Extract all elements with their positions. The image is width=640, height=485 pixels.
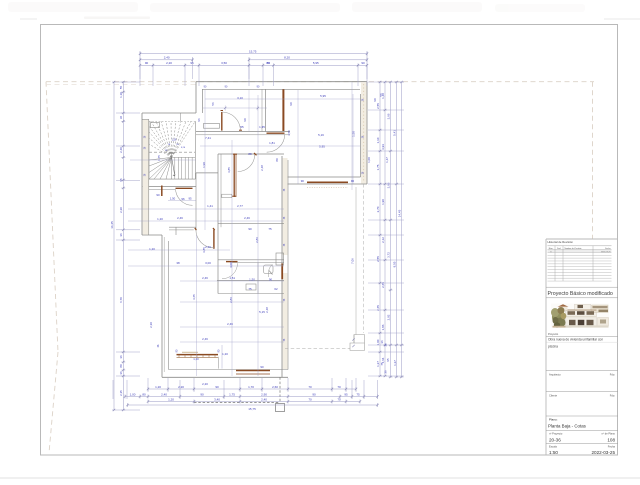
svg-text:75: 75	[268, 227, 272, 231]
svg-text:95: 95	[188, 197, 192, 201]
svg-text:8,55: 8,55	[392, 261, 396, 267]
svg-text:2,86: 2,86	[229, 297, 233, 303]
svg-text:2022-03-25: 2022-03-25	[592, 450, 616, 455]
svg-text:Proyecto: Proyecto	[548, 332, 559, 336]
svg-text:Nombre del Cambio: Nombre del Cambio	[565, 247, 582, 250]
svg-text:2,40: 2,40	[164, 56, 170, 60]
svg-text:36: 36	[384, 343, 388, 347]
svg-text:90: 90	[145, 61, 149, 65]
svg-text:2,70: 2,70	[376, 206, 380, 212]
svg-text:Historial de Revisión: Historial de Revisión	[548, 240, 574, 244]
svg-text:2,30: 2,30	[149, 322, 153, 328]
svg-text:36: 36	[119, 233, 123, 237]
svg-text:90: 90	[248, 227, 252, 231]
svg-text:3,72: 3,72	[386, 252, 390, 258]
svg-text:36: 36	[119, 371, 123, 375]
svg-text:95: 95	[344, 392, 348, 396]
svg-text:88: 88	[248, 152, 252, 156]
svg-text:1,50: 1,50	[352, 131, 356, 137]
svg-text:3,93: 3,93	[381, 144, 385, 150]
svg-text:3,65: 3,65	[192, 294, 196, 300]
svg-text:1,35: 1,35	[259, 125, 265, 129]
svg-text:1,10: 1,10	[376, 137, 380, 143]
svg-text:90: 90	[289, 102, 293, 106]
svg-text:62: 62	[274, 287, 278, 291]
svg-text:90: 90	[243, 118, 247, 122]
svg-text:2,40: 2,40	[119, 147, 123, 153]
svg-text:80: 80	[119, 364, 123, 368]
svg-text:38: 38	[176, 261, 180, 265]
svg-text:36: 36	[380, 340, 384, 344]
svg-text:1,50: 1,50	[249, 278, 255, 282]
svg-text:1,90: 1,90	[202, 162, 206, 168]
svg-text:90: 90	[200, 392, 204, 396]
svg-text:3,50: 3,50	[221, 61, 227, 65]
svg-text:Fdo:: Fdo:	[610, 373, 615, 377]
svg-text:3,10: 3,10	[237, 96, 243, 100]
svg-text:15,75: 15,75	[249, 50, 257, 54]
svg-text:90: 90	[351, 179, 355, 183]
svg-text:1,26: 1,26	[172, 139, 177, 142]
svg-text:2,20: 2,20	[202, 382, 208, 386]
svg-text:1,20: 1,20	[222, 352, 228, 356]
svg-text:56: 56	[211, 102, 215, 106]
svg-text:96: 96	[181, 197, 185, 201]
svg-text:1,27: 1,27	[393, 360, 397, 366]
svg-text:2,46: 2,46	[202, 276, 208, 280]
svg-text:6,70: 6,70	[119, 297, 123, 303]
svg-text:1,20: 1,20	[155, 385, 161, 389]
svg-text:2,40: 2,40	[261, 397, 267, 401]
svg-text:1,75: 1,75	[157, 155, 161, 161]
svg-text:2,35: 2,35	[119, 390, 123, 396]
svg-text:1,10: 1,10	[119, 92, 123, 98]
svg-text:2,86: 2,86	[255, 237, 259, 243]
svg-text:5,95: 5,95	[319, 145, 325, 149]
svg-text:5,41: 5,41	[392, 130, 396, 136]
svg-text:90: 90	[156, 193, 160, 197]
svg-text:70: 70	[337, 385, 341, 389]
svg-text:Escala: Escala	[549, 445, 557, 449]
svg-text:nº de Plano: nº de Plano	[602, 432, 616, 436]
svg-text:1,41: 1,41	[207, 204, 213, 208]
svg-text:2,48: 2,48	[265, 307, 269, 313]
svg-text:3,85: 3,85	[227, 167, 231, 173]
svg-text:1,20: 1,20	[149, 247, 155, 251]
svg-text:7,06: 7,06	[350, 258, 354, 264]
svg-text:20-36: 20-36	[549, 438, 561, 443]
svg-text:80: 80	[266, 61, 270, 65]
svg-text:108: 108	[607, 438, 615, 443]
svg-text:Proyecto Básico modificado: Proyecto Básico modificado	[548, 291, 613, 297]
svg-text:1,00: 1,00	[130, 392, 136, 396]
svg-text:2,77: 2,77	[237, 204, 243, 208]
svg-text:55: 55	[119, 86, 123, 90]
svg-text:14,45: 14,45	[110, 221, 114, 229]
svg-text:Fdo:: Fdo:	[610, 394, 615, 398]
svg-text:Fecha: Fecha	[608, 445, 616, 449]
svg-text:Arquitecto: Arquitecto	[549, 373, 561, 377]
svg-text:2,55: 2,55	[376, 103, 380, 109]
svg-text:75: 75	[380, 362, 384, 366]
svg-text:2,46: 2,46	[205, 245, 211, 249]
svg-text:75: 75	[248, 287, 252, 291]
svg-text:5,95: 5,95	[313, 61, 319, 65]
svg-text:56: 56	[379, 93, 383, 97]
svg-text:2,65: 2,65	[381, 282, 385, 288]
svg-text:4,55: 4,55	[287, 130, 291, 136]
svg-text:80: 80	[275, 158, 279, 162]
svg-text:90: 90	[301, 179, 305, 183]
svg-text:piscina: piscina	[548, 344, 558, 348]
svg-text:95: 95	[386, 358, 390, 362]
svg-text:5,15: 5,15	[259, 310, 265, 314]
svg-text:3,66: 3,66	[386, 113, 390, 119]
svg-text:55: 55	[240, 125, 244, 129]
svg-text:2,46: 2,46	[202, 337, 208, 341]
svg-text:15,75: 15,75	[248, 407, 256, 411]
svg-text:1,90: 1,90	[381, 199, 385, 205]
svg-text:1,75: 1,75	[229, 392, 235, 396]
svg-text:7,41: 7,41	[205, 136, 211, 140]
svg-text:1,20: 1,20	[168, 397, 174, 401]
svg-text:nº Proyecto: nº Proyecto	[549, 432, 563, 436]
svg-text:2,20: 2,20	[119, 207, 123, 213]
svg-text:90: 90	[312, 392, 316, 396]
svg-text:1:50: 1:50	[549, 450, 558, 455]
svg-text:75: 75	[356, 392, 360, 396]
svg-text:2,46: 2,46	[244, 216, 250, 220]
svg-text:36: 36	[119, 355, 123, 359]
svg-text:2,12: 2,12	[381, 237, 385, 243]
svg-text:36: 36	[384, 370, 388, 374]
svg-text:80: 80	[142, 392, 146, 396]
svg-text:1,75: 1,75	[376, 164, 380, 170]
svg-text:2,40: 2,40	[161, 392, 167, 396]
svg-text:90: 90	[361, 61, 365, 65]
svg-text:1,86: 1,86	[381, 324, 385, 330]
svg-text:2,20: 2,20	[178, 385, 184, 389]
svg-text:2,46: 2,46	[177, 216, 183, 220]
svg-text:95: 95	[190, 61, 194, 65]
svg-text:8,20: 8,20	[284, 56, 290, 60]
svg-text:2,90: 2,90	[261, 392, 267, 396]
svg-text:1,47: 1,47	[385, 157, 389, 163]
svg-text:1,70: 1,70	[248, 385, 254, 389]
svg-text:95: 95	[119, 178, 123, 182]
svg-text:36: 36	[119, 116, 123, 120]
svg-text:1,20: 1,20	[157, 217, 163, 221]
svg-text:70: 70	[308, 385, 312, 389]
svg-text:2,20: 2,20	[166, 61, 172, 65]
svg-text:90: 90	[373, 98, 377, 102]
svg-text:1,50: 1,50	[170, 197, 176, 201]
svg-text:14,45: 14,45	[397, 209, 401, 217]
svg-text:96: 96	[197, 118, 201, 122]
svg-text:2,46: 2,46	[227, 322, 233, 326]
svg-text:Planta Baja - Cotas: Planta Baja - Cotas	[548, 423, 587, 428]
svg-text:2,92: 2,92	[386, 314, 390, 320]
svg-text:1,51: 1,51	[229, 276, 235, 280]
svg-text:1,81: 1,81	[269, 141, 275, 145]
svg-text:3,00: 3,00	[205, 261, 211, 265]
svg-text:90: 90	[260, 365, 264, 369]
svg-text:2,55: 2,55	[376, 256, 380, 262]
svg-text:70: 70	[308, 397, 312, 401]
svg-text:Obra nueva de vivienda unifami: Obra nueva de vivienda unifamiliar con	[548, 338, 603, 342]
svg-text:Plano:: Plano:	[549, 418, 558, 422]
svg-text:Draf.: Draf.	[557, 247, 562, 250]
svg-text:3,40: 3,40	[214, 397, 220, 401]
svg-text:70: 70	[337, 397, 341, 401]
svg-text:5,95: 5,95	[320, 94, 326, 98]
svg-text:1,00: 1,00	[367, 157, 371, 163]
svg-text:3,00: 3,00	[229, 262, 233, 268]
svg-text:3,66: 3,66	[386, 182, 390, 188]
svg-text:5,16: 5,16	[318, 133, 324, 137]
svg-text:1,20: 1,20	[193, 357, 199, 361]
svg-text:90: 90	[215, 385, 219, 389]
svg-text:2,60: 2,60	[272, 385, 278, 389]
svg-text:Cliente: Cliente	[549, 394, 558, 398]
svg-text:2,48: 2,48	[260, 165, 264, 171]
svg-text:90: 90	[269, 278, 273, 282]
svg-text:Núm.: Núm.	[549, 248, 554, 250]
